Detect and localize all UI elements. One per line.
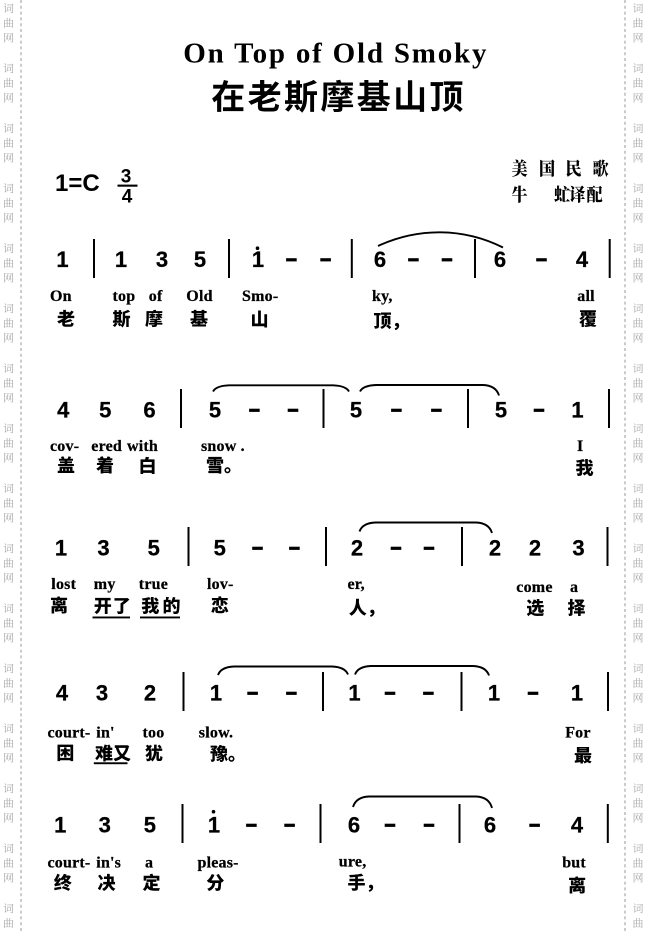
svg-text:2: 2 — [144, 681, 156, 706]
svg-text:1: 1 — [571, 681, 583, 706]
svg-text:1: 1 — [571, 398, 583, 423]
svg-text:true: true — [139, 576, 168, 593]
svg-text:1: 1 — [115, 247, 127, 272]
svg-text:1: 1 — [252, 247, 264, 272]
svg-text:of: of — [149, 288, 163, 305]
svg-text:4: 4 — [57, 398, 70, 423]
svg-text:5: 5 — [214, 536, 226, 561]
svg-text:5: 5 — [99, 398, 111, 423]
svg-text:my: my — [94, 576, 116, 593]
svg-text:6: 6 — [484, 813, 496, 838]
svg-text:3: 3 — [99, 813, 111, 838]
svg-text:top: top — [113, 288, 136, 305]
svg-text:3: 3 — [97, 536, 109, 561]
svg-text:6: 6 — [348, 813, 360, 838]
svg-text:ered: ered — [91, 438, 122, 455]
svg-text:but: but — [562, 855, 586, 872]
svg-text:2: 2 — [529, 536, 541, 561]
svg-text:5: 5 — [495, 398, 507, 423]
svg-text:1: 1 — [54, 813, 66, 838]
svg-text:lost: lost — [51, 576, 76, 593]
svg-text:er,: er, — [348, 576, 365, 593]
svg-text:pleas-: pleas- — [198, 855, 239, 872]
svg-text:5: 5 — [148, 536, 160, 561]
svg-text:5: 5 — [350, 398, 362, 423]
svg-text:1: 1 — [210, 681, 222, 706]
svg-text:come: come — [516, 579, 552, 596]
svg-text:On Top of Old Smoky: On Top of Old Smoky — [183, 38, 488, 70]
svg-text:snow .: snow . — [201, 438, 245, 455]
svg-text:court-: court- — [48, 855, 91, 872]
svg-text:5: 5 — [144, 813, 156, 838]
svg-text:too: too — [143, 725, 165, 742]
svg-text:lov-: lov- — [207, 576, 234, 593]
svg-text:3: 3 — [96, 681, 108, 706]
svg-text:ure,: ure, — [339, 853, 367, 870]
svg-text:1: 1 — [56, 247, 68, 272]
svg-text:5: 5 — [194, 247, 206, 272]
svg-text:1: 1 — [208, 813, 220, 838]
svg-text:in': in' — [96, 725, 114, 742]
svg-text:2: 2 — [351, 536, 363, 561]
svg-text:ky,: ky, — [372, 288, 393, 305]
svg-text:6: 6 — [374, 247, 386, 272]
svg-text:1: 1 — [348, 681, 360, 706]
svg-text:1=C: 1=C — [55, 170, 100, 197]
svg-text:I: I — [577, 438, 583, 455]
svg-text:5: 5 — [209, 398, 221, 423]
svg-text:3: 3 — [121, 167, 132, 188]
svg-text:1: 1 — [488, 681, 500, 706]
svg-text:6: 6 — [494, 247, 506, 272]
svg-text:in's: in's — [96, 855, 121, 872]
svg-text:a: a — [145, 855, 153, 872]
svg-text:cov-: cov- — [50, 438, 79, 455]
svg-text:slow.: slow. — [199, 725, 233, 742]
svg-text:4: 4 — [571, 813, 584, 838]
svg-text:4: 4 — [56, 681, 69, 706]
svg-text:Smo-: Smo- — [242, 288, 278, 305]
svg-text:1: 1 — [55, 536, 67, 561]
svg-text:court-: court- — [48, 725, 91, 742]
svg-text:3: 3 — [572, 536, 584, 561]
svg-text:a: a — [570, 579, 578, 596]
svg-text:4: 4 — [576, 247, 589, 272]
svg-text:On: On — [50, 288, 72, 305]
svg-text:For: For — [565, 725, 590, 742]
svg-text:Old: Old — [186, 288, 212, 305]
svg-text:4: 4 — [122, 187, 133, 208]
svg-text:2: 2 — [489, 536, 501, 561]
svg-text:6: 6 — [143, 398, 155, 423]
svg-text:3: 3 — [156, 247, 168, 272]
svg-text:with: with — [127, 438, 158, 455]
svg-text:all: all — [577, 288, 595, 305]
